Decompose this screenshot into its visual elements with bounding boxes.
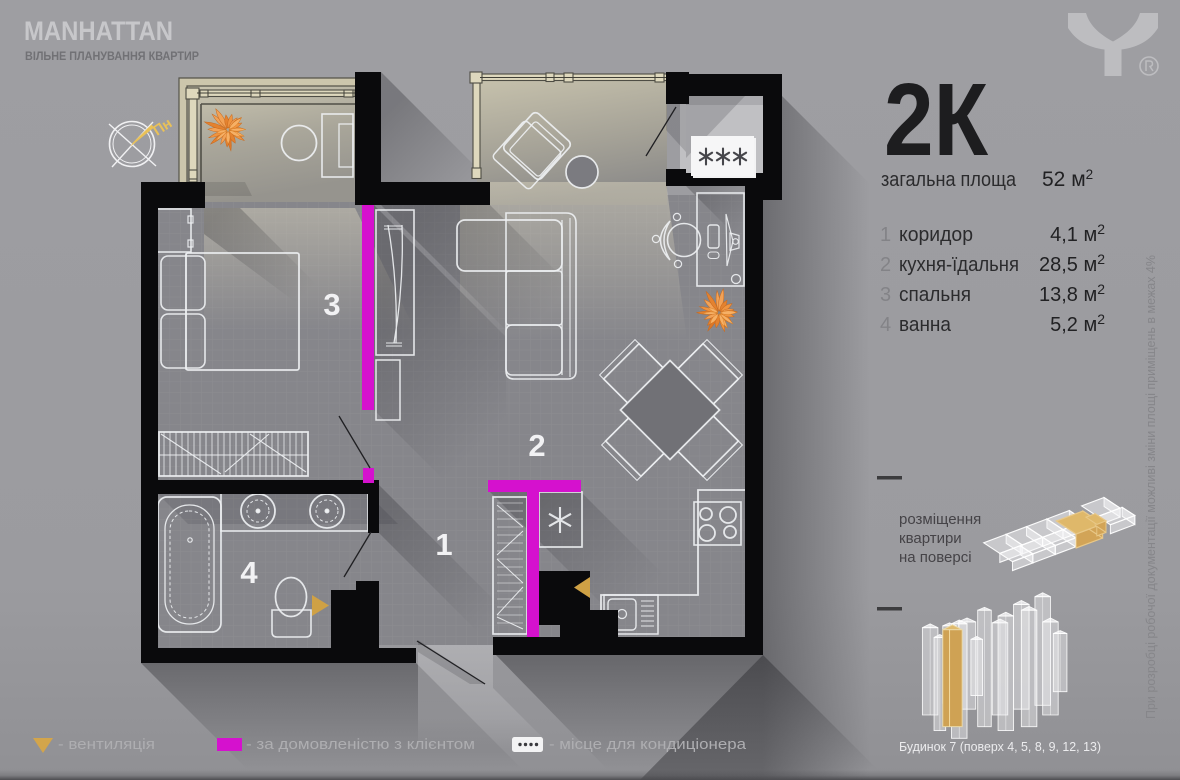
svg-text:2К: 2К bbox=[884, 62, 989, 177]
svg-text:1: 1 bbox=[880, 224, 891, 246]
svg-text:коридор: коридор bbox=[899, 224, 973, 246]
svg-text:5,2 м2: 5,2 м2 bbox=[1050, 311, 1105, 336]
svg-text:на поверсі: на поверсі bbox=[899, 549, 972, 566]
svg-text:28,5 м2: 28,5 м2 bbox=[1039, 251, 1105, 276]
svg-text:3: 3 bbox=[880, 284, 891, 306]
svg-text:2: 2 bbox=[880, 254, 891, 276]
svg-text:2: 2 bbox=[528, 428, 545, 463]
svg-text:загальна площа: загальна площа bbox=[881, 169, 1017, 191]
svg-text:розміщення: розміщення bbox=[899, 511, 981, 528]
svg-text:MANHATTAN: MANHATTAN bbox=[24, 16, 173, 46]
svg-text:кухня-їдальня: кухня-їдальня bbox=[899, 254, 1019, 276]
svg-text:спальня: спальня bbox=[899, 284, 971, 306]
svg-text:4: 4 bbox=[880, 314, 891, 336]
svg-text:4,1 м2: 4,1 м2 bbox=[1050, 221, 1105, 246]
svg-text:3: 3 bbox=[323, 287, 340, 322]
svg-text:4: 4 bbox=[240, 555, 258, 590]
svg-text:- за домовленістю з клієнтом: - за домовленістю з клієнтом bbox=[246, 736, 475, 753]
svg-text:Будинок 7 (поверх 4, 5, 8, 9,: Будинок 7 (поверх 4, 5, 8, 9, 12, 13) bbox=[899, 739, 1101, 754]
svg-text:При розробці робочої документа: При розробці робочої документації можлив… bbox=[1143, 255, 1158, 719]
svg-text:13,8 м2: 13,8 м2 bbox=[1039, 281, 1105, 306]
svg-text:- місце для кондиціонера: - місце для кондиціонера bbox=[549, 736, 747, 753]
svg-text:ванна: ванна bbox=[899, 314, 952, 336]
svg-text:1: 1 bbox=[435, 527, 452, 562]
svg-text:- вентиляція: - вентиляція bbox=[58, 736, 155, 753]
svg-text:52 м2: 52 м2 bbox=[1042, 167, 1093, 191]
svg-text:квартири: квартири bbox=[899, 530, 962, 547]
svg-text:ВІЛЬНЕ ПЛАНУВАННЯ КВАРТИР: ВІЛЬНЕ ПЛАНУВАННЯ КВАРТИР bbox=[25, 49, 199, 63]
